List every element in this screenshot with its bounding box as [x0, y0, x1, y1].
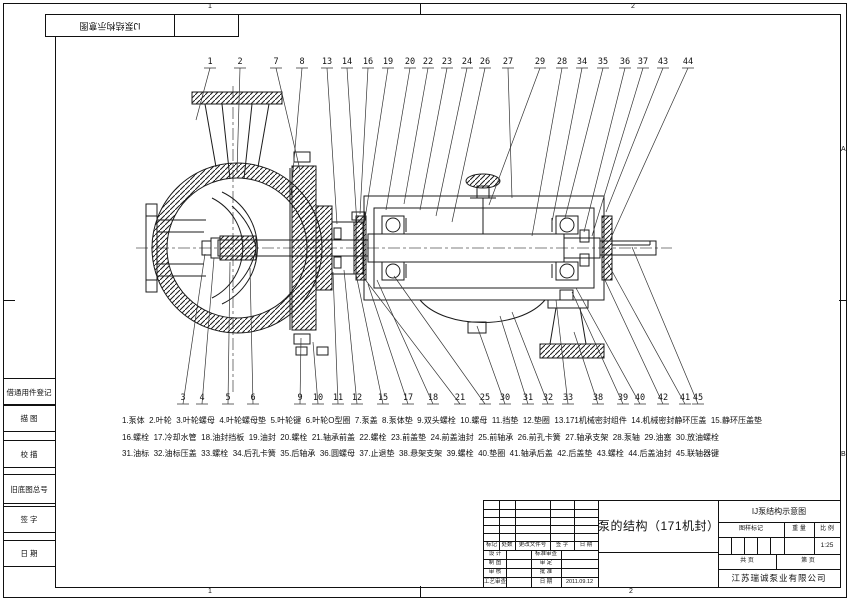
callout-leader-7	[270, 68, 300, 170]
title-block: 标记 处数 更改文件号 签 字 日 期 设 计 制 图 审 核 工艺审查 标准审…	[483, 500, 841, 588]
callout-leader-43	[606, 68, 669, 212]
callout-number-25: 25	[480, 393, 490, 403]
callout-number-36: 36	[620, 57, 630, 67]
tb-date-value: 2011.09.12	[561, 577, 598, 587]
casing-foot-bolt	[317, 347, 328, 355]
tb-line	[731, 537, 732, 554]
callout-number-21: 21	[455, 393, 465, 403]
callout-number-28: 28	[557, 57, 567, 67]
tb-line	[484, 525, 598, 526]
callout-number-19: 19	[383, 57, 393, 67]
callout-leader-45	[632, 247, 704, 404]
callout-number-43: 43	[658, 57, 668, 67]
bearing-front-cover	[356, 216, 366, 280]
tb-label-signature: 签 字	[550, 541, 574, 550]
foot-flange	[548, 300, 588, 308]
tb-line	[484, 533, 598, 534]
callout-leader-42	[604, 278, 669, 404]
callout-number-39: 39	[618, 393, 628, 403]
round-nut	[580, 230, 589, 242]
foot-web	[550, 308, 586, 344]
callout-leader-11	[332, 272, 344, 404]
parts-list: 1.泵体 2.叶轮 3.叶轮螺母 4.叶轮螺母垫 5.叶轮键 6.叶轮O型圈 7…	[122, 413, 762, 463]
cover-bolt	[294, 334, 310, 344]
front-bearing	[382, 216, 404, 234]
callout-leader-6	[247, 268, 259, 404]
seal-element	[334, 228, 341, 239]
drawing-sheet: 1 2 1 2 A B IJ泵结构示意图 借通用件登记 描 图 校 描 旧底图总…	[0, 0, 850, 601]
callout-number-38: 38	[593, 393, 603, 403]
tb-label-review: 审 核	[484, 568, 506, 577]
callout-leader-20	[386, 68, 416, 210]
callout-number-23: 23	[442, 57, 452, 67]
callout-number-14: 14	[342, 57, 352, 67]
callout-number-3: 3	[180, 393, 185, 403]
discharge-flange	[192, 92, 282, 104]
tb-label-mark: 标记	[484, 541, 499, 550]
callout-leader-19	[363, 68, 394, 232]
callout-number-31: 31	[523, 393, 533, 403]
callout-leader-37	[592, 68, 649, 236]
callout-number-26: 26	[480, 57, 490, 67]
tb-label-weight: 重 量	[784, 522, 814, 537]
tb-label-total-pages: 共 页	[718, 554, 776, 569]
parts-list-row: 16.螺栓 17.冷却水管 18.油封挡板 19.油封 20.螺栓 21.轴承前…	[122, 430, 762, 447]
tb-label-scale: 比 例	[814, 522, 840, 537]
callout-leader-14	[341, 68, 357, 225]
pump-cover	[292, 166, 316, 330]
callout-number-42: 42	[658, 393, 668, 403]
callout-number-37: 37	[638, 57, 648, 67]
callout-number-35: 35	[598, 57, 608, 67]
tb-label-draft: 制 图	[484, 559, 506, 568]
tb-product-title: 泵的结构（171机封）	[598, 501, 718, 552]
rear-bearing	[556, 262, 578, 280]
tb-company: 江苏瑞诚泵业有限公司	[718, 569, 840, 587]
tb-label-ratify: 批 准	[531, 568, 561, 577]
callout-leader-16	[360, 68, 374, 214]
tb-label-process-review: 工艺审查	[484, 577, 506, 587]
callout-leader-4	[196, 258, 214, 404]
callout-number-2: 2	[237, 57, 242, 67]
callout-number-34: 34	[577, 57, 587, 67]
tb-label-date2: 日 期	[531, 577, 561, 587]
callout-leader-41	[607, 262, 691, 404]
tb-label-qty: 处数	[499, 541, 515, 550]
callout-leader-24	[436, 68, 473, 216]
tb-drawing-name: IJ泵结构示意图	[718, 501, 840, 522]
callout-number-44: 44	[683, 57, 693, 67]
tb-line	[744, 537, 745, 554]
callout-leader-15	[356, 274, 389, 404]
rear-bearing-ball	[560, 218, 574, 232]
front-bearing-ball	[386, 218, 400, 232]
tb-scale-value: 1:25	[814, 537, 840, 554]
callout-number-29: 29	[535, 57, 545, 67]
callout-leader-18	[377, 280, 439, 404]
callout-layer: 1278131416192022232426272928343536374344…	[177, 57, 704, 404]
drain-bolt	[468, 322, 486, 333]
callout-number-16: 16	[363, 57, 373, 67]
tb-label-page-no: 第 页	[776, 554, 840, 569]
callout-number-8: 8	[299, 57, 304, 67]
callout-leader-27	[502, 68, 514, 198]
callout-number-13: 13	[322, 57, 332, 67]
tb-label-design: 设 计	[484, 550, 506, 559]
callout-leader-22	[404, 68, 434, 204]
callout-number-1: 1	[207, 57, 212, 67]
rear-bearing-ball	[560, 264, 574, 278]
callout-number-22: 22	[423, 57, 433, 67]
callout-number-18: 18	[428, 393, 438, 403]
callout-leader-25	[394, 276, 491, 404]
callout-number-24: 24	[462, 57, 472, 67]
callout-number-20: 20	[405, 57, 415, 67]
discharge-neck	[258, 104, 269, 167]
foot-base	[540, 344, 604, 358]
callout-leader-28	[532, 68, 568, 236]
tb-label-pattern-mark: 图样标记	[718, 522, 784, 537]
rear-bearing	[556, 216, 578, 234]
parts-list-row: 31.油标 32.油标压盖 33.螺栓 34.后孔卡簧 35.后轴承 36.圆螺…	[122, 446, 762, 463]
callout-leader-44	[610, 68, 694, 240]
callout-leader-17	[368, 284, 414, 404]
tb-line	[757, 537, 758, 554]
callout-leader-23	[420, 68, 453, 210]
tb-line	[484, 517, 598, 518]
callout-number-15: 15	[378, 393, 388, 403]
pump-cover-step	[316, 206, 332, 290]
round-nut	[580, 254, 589, 266]
callout-number-27: 27	[503, 57, 513, 67]
callout-number-45: 45	[693, 393, 703, 403]
discharge-neck	[205, 104, 216, 167]
front-bearing	[382, 262, 404, 280]
front-bearing-ball	[386, 264, 400, 278]
callout-leader-12	[344, 270, 363, 404]
callout-leader-26	[452, 68, 491, 222]
tb-label-approve: 审 定	[531, 559, 561, 568]
callout-leader-31	[500, 316, 534, 404]
tb-label-std-review: 标准审查	[531, 550, 561, 559]
seal-element	[334, 257, 341, 268]
tb-line	[598, 552, 718, 553]
tb-label-change-doc: 更改文件号	[515, 541, 550, 550]
callout-number-17: 17	[403, 393, 413, 403]
callout-leader-2	[234, 68, 246, 172]
oil-sump	[420, 300, 545, 323]
parts-list-row: 1.泵体 2.叶轮 3.叶轮螺母 4.叶轮螺母垫 5.叶轮键 6.叶轮O型圈 7…	[122, 413, 762, 430]
tb-line	[770, 537, 771, 554]
bearing-rear-cover	[602, 216, 612, 280]
tb-label-date: 日 期	[574, 541, 598, 550]
callout-leader-13	[321, 68, 337, 224]
tb-line	[484, 509, 598, 510]
callout-number-7: 7	[273, 57, 278, 67]
casing-foot-bolt	[296, 347, 307, 355]
foot-bolt	[560, 290, 573, 300]
